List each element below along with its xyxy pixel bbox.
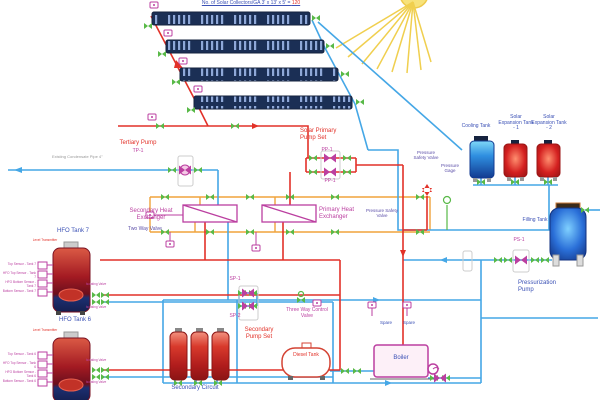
hfo-tank-7 [38,242,90,315]
diesel-tank [282,343,330,380]
schematic-canvas [0,0,600,400]
solar-thermal-schematic: No. of Solar Collectors/GA 3' x 13' x 5'… [0,0,600,400]
boiler [370,345,439,379]
solar-expansion-tank-2 [537,140,560,181]
secondary-circuit-tanks [170,328,229,380]
hfo-tank-6 [38,332,90,400]
heat-exchangers [183,205,316,222]
filling-tank [550,203,586,266]
pumps [179,154,527,383]
solar-expansion-tank-1 [504,140,527,181]
sun-icon [336,0,431,73]
cooling-tank [470,136,494,182]
